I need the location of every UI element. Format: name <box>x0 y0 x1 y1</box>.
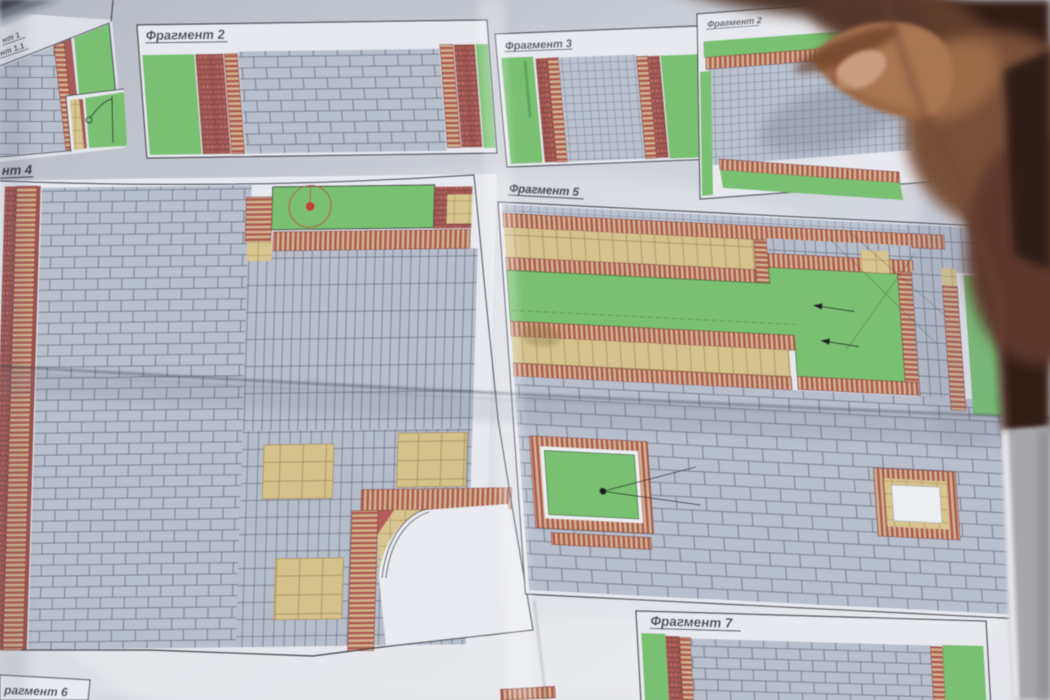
svg-text:Фрагмент 2: Фрагмент 2 <box>145 27 226 43</box>
